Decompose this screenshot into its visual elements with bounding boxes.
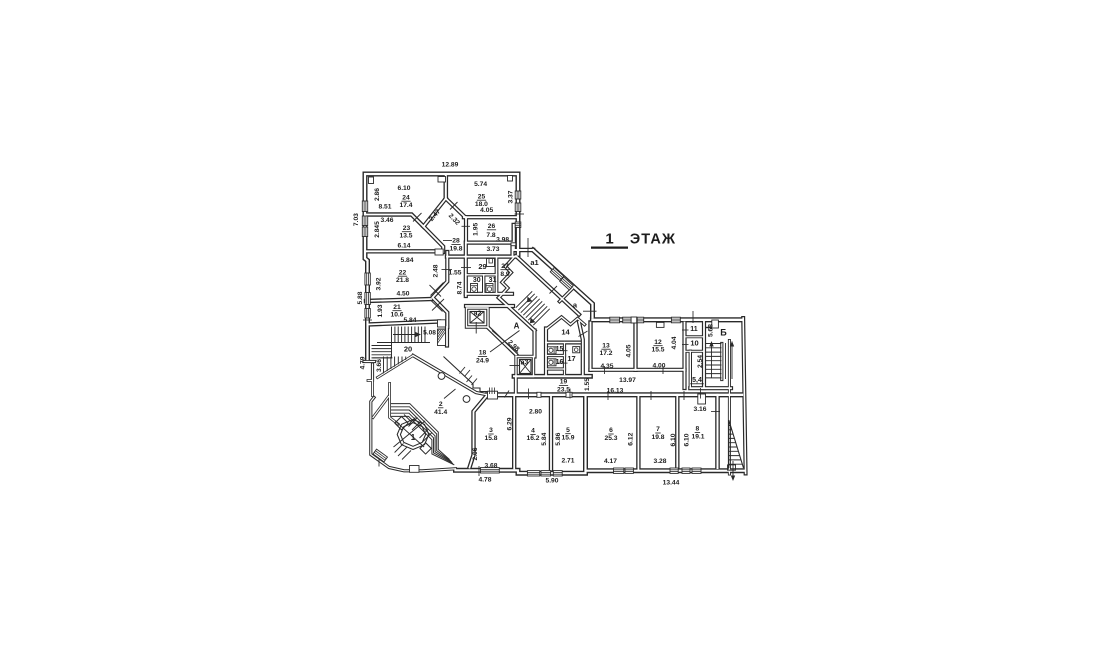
svg-text:23.5: 23.5	[557, 386, 570, 393]
svg-text:3.37: 3.37	[507, 190, 514, 203]
svg-text:23: 23	[403, 225, 411, 232]
svg-text:7.8: 7.8	[486, 232, 496, 239]
svg-text:6.14: 6.14	[397, 242, 410, 249]
svg-text:6.10: 6.10	[670, 433, 677, 446]
svg-text:4.05: 4.05	[625, 344, 632, 357]
svg-text:19.8: 19.8	[651, 434, 664, 441]
svg-text:4.17: 4.17	[604, 458, 617, 465]
svg-text:16: 16	[556, 359, 564, 366]
svg-text:30: 30	[473, 277, 481, 284]
svg-text:18: 18	[479, 350, 487, 357]
svg-text:4.79: 4.79	[359, 356, 366, 369]
svg-text:2.06: 2.06	[472, 447, 479, 460]
svg-text:13: 13	[602, 342, 610, 349]
svg-text:5.08: 5.08	[423, 329, 436, 336]
svg-text:1.55: 1.55	[448, 269, 461, 276]
svg-text:6.29: 6.29	[506, 417, 513, 430]
svg-text:12: 12	[654, 339, 662, 346]
svg-text:24: 24	[402, 194, 410, 201]
svg-text:3.68: 3.68	[484, 462, 497, 469]
svg-text:5.90: 5.90	[545, 477, 558, 484]
svg-text:11: 11	[690, 326, 698, 333]
svg-text:5.84: 5.84	[400, 257, 413, 264]
svg-text:5.88: 5.88	[357, 291, 364, 304]
svg-text:12.89: 12.89	[442, 161, 459, 168]
svg-text:21.8: 21.8	[396, 277, 409, 284]
svg-text:A: A	[514, 321, 520, 330]
svg-text:16.2: 16.2	[526, 435, 539, 442]
svg-text:29: 29	[478, 262, 486, 271]
svg-text:4.35: 4.35	[600, 363, 613, 370]
svg-text:28: 28	[452, 238, 460, 245]
svg-text:15: 15	[556, 346, 564, 353]
svg-text:1: 1	[411, 433, 416, 442]
svg-text:15.5: 15.5	[651, 347, 664, 354]
svg-text:13.5: 13.5	[399, 233, 412, 240]
svg-text:a2: a2	[474, 311, 482, 318]
svg-text:3.28: 3.28	[653, 458, 666, 465]
svg-text:19.1: 19.1	[691, 433, 704, 440]
svg-text:8.9: 8.9	[500, 271, 510, 278]
svg-text:6.10: 6.10	[397, 185, 410, 192]
svg-text:5.84: 5.84	[541, 432, 548, 445]
svg-text:3.73: 3.73	[486, 246, 499, 253]
svg-text:1.95: 1.95	[472, 223, 479, 236]
svg-text:4.05: 4.05	[480, 207, 493, 214]
svg-text:Б: Б	[720, 328, 727, 338]
svg-text:20: 20	[404, 345, 412, 354]
svg-text:3: 3	[489, 427, 493, 434]
svg-text:26: 26	[488, 223, 496, 230]
svg-text:19.8: 19.8	[449, 245, 462, 252]
svg-text:6: 6	[609, 427, 613, 434]
svg-text:4.50: 4.50	[396, 290, 409, 297]
svg-text:15.8: 15.8	[484, 435, 497, 442]
svg-text:2.80: 2.80	[529, 409, 542, 416]
svg-text:4.04: 4.04	[671, 336, 678, 349]
svg-text:8: 8	[696, 426, 700, 433]
svg-text:ЭТАЖ: ЭТАЖ	[630, 232, 676, 248]
svg-text:13.44: 13.44	[663, 479, 680, 486]
svg-text:17.2: 17.2	[599, 350, 612, 357]
svg-text:16.13: 16.13	[607, 387, 624, 394]
svg-text:6.10: 6.10	[683, 433, 690, 446]
svg-text:10.6: 10.6	[390, 312, 403, 319]
svg-text:5.74: 5.74	[474, 181, 487, 188]
svg-text:4.00: 4.00	[652, 363, 665, 370]
svg-text:2.48: 2.48	[432, 264, 439, 277]
svg-text:1: 1	[605, 230, 613, 247]
svg-text:5.84: 5.84	[403, 317, 416, 324]
svg-text:24.9: 24.9	[476, 357, 489, 364]
svg-text:5,4: 5,4	[692, 377, 702, 384]
svg-text:17: 17	[567, 354, 575, 363]
svg-text:14: 14	[561, 328, 570, 337]
svg-text:2.54: 2.54	[697, 355, 704, 368]
svg-text:7: 7	[656, 426, 660, 433]
svg-text:5.68: 5.68	[707, 324, 714, 337]
svg-text:3.92: 3.92	[375, 277, 382, 290]
svg-text:21: 21	[393, 304, 401, 311]
svg-text:3.46: 3.46	[380, 217, 393, 224]
svg-text:8.74: 8.74	[456, 281, 463, 294]
svg-text:41.4: 41.4	[434, 409, 447, 416]
svg-text:25.3: 25.3	[604, 435, 617, 442]
svg-text:6.12: 6.12	[628, 432, 635, 445]
svg-text:22: 22	[399, 269, 407, 276]
svg-text:7.03: 7.03	[353, 213, 360, 226]
svg-text:3.16: 3.16	[693, 406, 706, 413]
svg-text:2.86: 2.86	[374, 188, 381, 201]
svg-text:15.9: 15.9	[561, 434, 574, 441]
svg-text:10: 10	[690, 339, 698, 348]
svg-text:3.66: 3.66	[376, 359, 383, 372]
svg-text:25: 25	[478, 193, 486, 200]
svg-text:31: 31	[489, 277, 497, 284]
svg-text:2: 2	[439, 401, 443, 408]
svg-text:4: 4	[531, 428, 535, 435]
svg-text:17.4: 17.4	[399, 202, 412, 209]
svg-text:27: 27	[501, 263, 509, 270]
svg-text:4.78: 4.78	[478, 476, 491, 483]
svg-text:2.71: 2.71	[561, 457, 574, 464]
svg-text:8.51: 8.51	[378, 204, 391, 211]
svg-text:1.93: 1.93	[377, 304, 384, 317]
svg-text:2.845: 2.845	[374, 221, 381, 238]
svg-text:13.97: 13.97	[619, 377, 636, 384]
svg-text:a1: a1	[530, 258, 538, 267]
svg-text:a3: a3	[521, 359, 529, 366]
svg-text:19: 19	[560, 379, 568, 386]
svg-text:5: 5	[566, 427, 570, 434]
svg-text:3.98: 3.98	[496, 237, 509, 244]
svg-text:1.55: 1.55	[584, 378, 591, 391]
